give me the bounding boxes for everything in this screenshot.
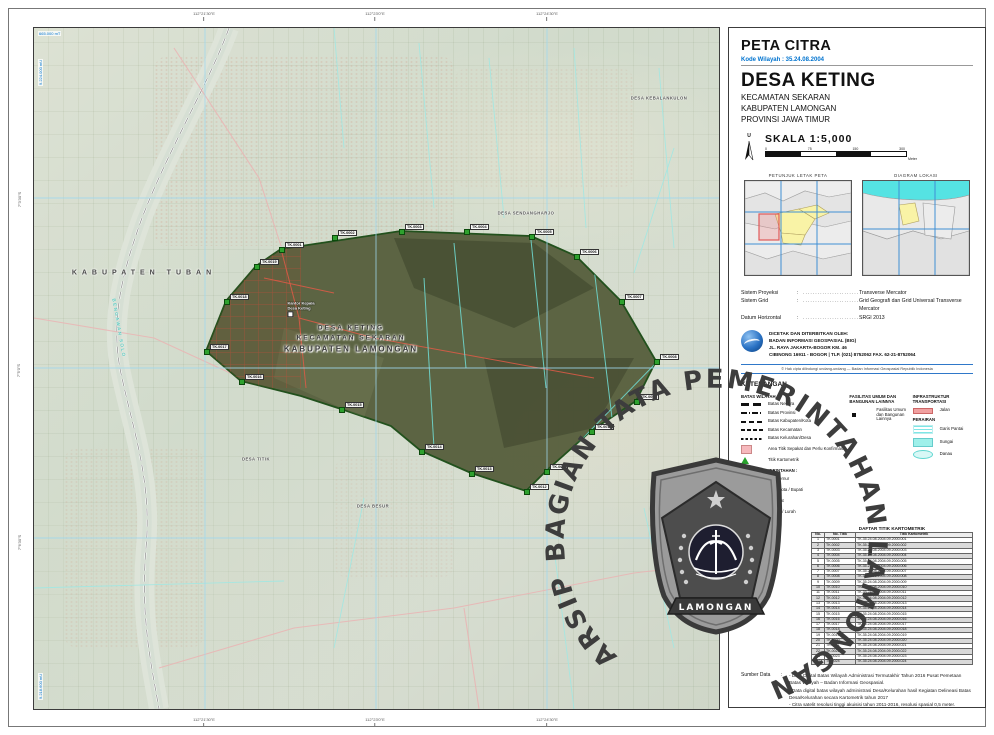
legend-item-label: Batas Kecamatan xyxy=(768,428,802,433)
table-cell-no-titik: TK.0024 xyxy=(825,659,856,664)
publisher-lines: DICETAK DAN DITERBITKAN OLEH:BADAN INFOR… xyxy=(769,330,916,358)
scale-label: SKALA 1:5,000 xyxy=(765,133,973,145)
scalebar-tick: 300 xyxy=(899,147,905,151)
copyright-strip: © Hak cipta dilindungi undang-undang — B… xyxy=(741,364,973,374)
legend-swatch xyxy=(741,445,752,454)
legend-kantor-title: KANTOR PEMERINTAHAN : xyxy=(741,468,845,473)
admin-line: KECAMATAN SEKARAN xyxy=(741,92,973,103)
projection-label: Sistem Grid xyxy=(741,297,797,305)
kartometric-table-block: DAFTAR TITIK KARTOMETRIK No.No. TitikTit… xyxy=(811,526,973,665)
publisher-line: BADAN INFORMASI GEOSPASIAL (BIG) xyxy=(769,337,916,344)
projection-value: SRGI 2013 xyxy=(859,314,973,322)
desa-label: DESA BESUR xyxy=(357,504,389,509)
legend-item-label: Sungai xyxy=(940,440,953,445)
legend-item: Batas Provinsi xyxy=(741,411,845,416)
tk-marker-label: TK.0014 xyxy=(425,444,444,450)
legend-swatch xyxy=(741,457,749,464)
grid-coordinate-label: 665.000 mT xyxy=(38,31,61,36)
legend-infra-items: Jalan xyxy=(913,408,973,414)
legend-item: Fasilitas Umum dan Bangunan Lainnya xyxy=(849,408,912,423)
legend-swatch xyxy=(741,438,763,440)
source-line: - Citra satelit resolusi tinggi akuisisi… xyxy=(789,701,973,708)
government-office-icon: ⌂ xyxy=(741,498,749,506)
publisher-line: JL. RAYA JAKARTA-BOGOR KM. 46 xyxy=(769,344,916,351)
legend-item: Titik Kartometrik xyxy=(741,457,845,464)
legend-swatch xyxy=(913,425,933,434)
tick-label: 112°23'0"E xyxy=(365,717,385,727)
tk-marker-label: TK.0007 xyxy=(625,294,644,300)
sources-label: Sumber Data xyxy=(741,672,781,708)
desa-label: DESA SENDANGHARJO xyxy=(498,211,555,216)
legend-columns: BATAS WILAYAH : Batas Negara Batas Provi… xyxy=(741,391,973,520)
tick-label: 112°24'30"E xyxy=(536,717,558,727)
legend-perairan-items: Garis Pantai Sungai Danau xyxy=(913,425,973,459)
legend-item-label: Danau xyxy=(940,452,953,457)
legend-item: Batas Negara xyxy=(741,402,845,407)
scale-block: U SKALA 1:5,000 075150300 Meter xyxy=(741,133,973,165)
legend-item-label: Jalan xyxy=(940,408,950,413)
tick-label: 112°23'0"E xyxy=(365,11,385,21)
desa-label: DESA TITIK xyxy=(242,457,270,462)
north-arrow: U xyxy=(741,133,757,165)
inset-location-guide-map xyxy=(744,180,852,276)
legend-swatch xyxy=(741,412,763,414)
scalebar-tick: 75 xyxy=(808,147,812,151)
tk-marker-label: TK.0013 xyxy=(475,466,494,472)
kartometric-table: No.No. TitikTitik Kartometrik 1 TK.0001 … xyxy=(811,532,973,665)
legend-item-label: Garis Pantai xyxy=(940,427,964,432)
admin-line: PROVINSI JAWA TIMUR xyxy=(741,114,973,125)
map-info-panel: PETA CITRA Kode Wilayah : 35.24.08.2004 … xyxy=(728,27,986,708)
desa-label: DESA KEBALANKULON xyxy=(631,96,688,101)
legend-batas-items: Batas Negara Batas Provinsi Batas Kabupa… xyxy=(741,402,845,464)
legend-fasum-items: Fasilitas Umum dan Bangunan Lainnya xyxy=(849,408,912,423)
tk-marker-label: TK.0001 xyxy=(285,242,304,248)
tk-marker-label: TK.0002 xyxy=(338,230,357,236)
legend-kantor-item: ⌂ ⌂ Walikota / Bupati xyxy=(741,487,845,495)
tk-marker-label: TK.0015 xyxy=(345,402,364,408)
tk-marker-label: TK.0011 xyxy=(550,464,568,470)
scalebar-unit: Meter xyxy=(765,157,917,161)
scalebar-tick: 150 xyxy=(852,147,858,151)
legend-swatch xyxy=(852,413,856,417)
tk-marker-label: TK.0008 xyxy=(660,354,679,360)
legend-infra-title: INFRASTRUKTUR TRANSPORTASI xyxy=(913,394,973,404)
projection-label: Datum Horizontal xyxy=(741,314,797,322)
legend-kantor-label: Desa / Lurah xyxy=(771,510,796,515)
kartometric-table-title: DAFTAR TITIK KARTOMETRIK xyxy=(811,526,973,531)
source-line: - Data digital batas wilayah administras… xyxy=(789,687,973,702)
legend-kantor-item: ⌂ ⌂ Camat xyxy=(741,498,845,506)
legend-item: Danau xyxy=(913,450,973,459)
tk-marker-label: TK.0012 xyxy=(530,484,549,490)
legend-item-label: Titik Kartometrik xyxy=(768,458,799,463)
kode-wilayah: Kode Wilayah : 35.24.08.2004 xyxy=(741,57,973,63)
legend-kantor-items: ⌂ ⌂ Gubernur ⌂ ⌂ Walikota / Bupati xyxy=(741,476,845,517)
map-sheet-page: 112°21'30"E112°23'0"E112°24'30"E 112°21'… xyxy=(0,0,994,735)
table-cell-kode: TK.35.24.08.2004.09.2000.024 xyxy=(856,659,973,664)
projection-value: Transverse Mercator xyxy=(859,289,973,297)
tick-label: 112°21'30"E xyxy=(193,717,215,727)
publisher-line: CIBINONG 16911 - BOGOR | TLP. (021) 8752… xyxy=(769,351,916,358)
tk-marker-label: TK.0017 xyxy=(210,344,229,350)
legend-kantor-label: Gubernur xyxy=(771,477,789,482)
projection-row: Datum Horizontal : .....................… xyxy=(741,314,973,322)
sources-block: Sumber Data : - Data Digital Batas Wilay… xyxy=(741,672,973,708)
table-body: 1 TK.0001 TK.35.24.08.2004.09.2000.001 2… xyxy=(812,538,973,665)
legend-item: Batas Kecamatan xyxy=(741,428,845,433)
legend-fasum-title: FASILITAS UMUM DAN BANGUNAN LAINNYA xyxy=(849,394,912,404)
grid-coordinate-label: 9.218.600 mU xyxy=(38,673,43,700)
legend-item-label: Batas Negara xyxy=(768,402,794,407)
projection-row: Sistem Grid : ..........................… xyxy=(741,297,973,314)
legend-kantor-label: Camat xyxy=(771,499,784,504)
tick-label: 112°24'30"E xyxy=(536,11,558,21)
legend-title: KETERANGAN xyxy=(741,381,973,388)
legend-item: Sungai xyxy=(913,438,973,447)
legend-item: Batas Kabupaten/Kota xyxy=(741,419,845,424)
projection-row: Sistem Proyeksi : ......................… xyxy=(741,289,973,297)
tick-label: 112°21'30"E xyxy=(193,11,215,21)
scalebar-tick: 0 xyxy=(765,147,767,151)
projection-label: Sistem Proyeksi xyxy=(741,289,797,297)
projection-info: Sistem Proyeksi : ......................… xyxy=(741,289,973,322)
legend-item: Garis Pantai xyxy=(913,425,973,434)
inset-location-diagram-map xyxy=(862,180,970,276)
legend-swatch xyxy=(741,421,763,423)
legend-item: Jalan xyxy=(913,408,973,414)
legend-swatch xyxy=(913,408,933,414)
government-office-icon: ⌂ xyxy=(741,487,749,495)
tick-label: 7°3'30"S xyxy=(17,192,22,207)
tk-marker-label: TK.0006 xyxy=(580,249,599,255)
tk-marker-label: TK.0004 xyxy=(470,224,489,230)
divider xyxy=(741,65,973,66)
big-globe-logo-icon xyxy=(741,330,763,352)
tk-marker-label: TK.0009 xyxy=(640,394,659,400)
legend-batas-title: BATAS WILAYAH : xyxy=(741,394,845,399)
map-canvas: KABUPATEN TUBAN DESA KETINGKECAMATAN SEK… xyxy=(33,27,720,710)
table-row: 24 TK.0024 TK.35.24.08.2004.09.2000.024 xyxy=(812,659,973,664)
legend-item-label: Batas Provinsi xyxy=(768,411,795,416)
table-cell-no: 24 xyxy=(812,659,825,664)
government-office-icon: ⌂ xyxy=(752,509,760,517)
government-office-icon: ⌂ xyxy=(741,509,749,517)
publisher-block: DICETAK DAN DITERBITKAN OLEH:BADAN INFOR… xyxy=(741,330,973,358)
projection-value: Grid Geografi dan Grid Universal Transve… xyxy=(859,297,973,314)
grid-coordinate-label: 9.224.000 mU xyxy=(38,59,43,86)
inset-location-diagram: DIAGRAM LOKASI xyxy=(862,173,970,281)
legend-swatch xyxy=(741,429,763,431)
village-layer xyxy=(34,28,719,709)
tk-marker-label: TK.0003 xyxy=(405,224,424,230)
tk-marker-label: TK.0005 xyxy=(535,229,554,235)
tk-marker-label: TK.0016 xyxy=(245,374,264,380)
village-title: DESA KETING xyxy=(741,70,973,92)
government-office-icon: ⌂ xyxy=(752,487,760,495)
legend-item: Area Titik Sepakat dan Perlu Konfirmasi xyxy=(741,445,845,454)
inset-caption: DIAGRAM LOKASI xyxy=(862,173,970,178)
inset-location-guide: PETUNJUK LETAK PETA xyxy=(744,173,852,281)
admin-line: KABUPATEN LAMONGAN xyxy=(741,103,973,114)
north-arrow-icon xyxy=(742,139,756,163)
legend-swatch xyxy=(913,438,933,447)
tk-marker-label: TK.0010 xyxy=(595,424,614,430)
legend-swatch xyxy=(913,450,933,459)
legend-swatch xyxy=(741,403,763,406)
source-line: - Data Digital Batas Wilayah Administras… xyxy=(789,672,973,687)
publisher-line: DICETAK DAN DITERBITKAN OLEH: xyxy=(769,330,916,337)
sources-items: - Data Digital Batas Wilayah Administras… xyxy=(789,672,973,708)
inset-caption: PETUNJUK LETAK PETA xyxy=(744,173,852,178)
legend-kantor-label: Walikota / Bupati xyxy=(771,488,803,493)
tick-label: 7°5'0"S xyxy=(16,364,21,377)
sheet-title: PETA CITRA xyxy=(741,38,973,54)
government-office-icon: ⌂ xyxy=(741,476,749,484)
legend-perairan-title: PERAIRAN xyxy=(913,417,973,422)
tk-marker-label: TK.0018 xyxy=(230,294,249,300)
admin-hierarchy: KECAMATAN SEKARANKABUPATEN LAMONGANPROVI… xyxy=(741,92,973,126)
legend-item-label: Batas Kelurahan/Desa xyxy=(768,436,811,441)
legend-kantor-item: ⌂ ⌂ Desa / Lurah xyxy=(741,509,845,517)
legend-item-label: Area Titik Sepakat dan Perlu Konfirmasi xyxy=(768,447,844,452)
legend-item: Batas Kelurahan/Desa xyxy=(741,436,845,441)
tk-marker-label: TK.0019 xyxy=(260,259,279,265)
legend-item-label: Batas Kabupaten/Kota xyxy=(768,419,811,424)
legend-item-label: Fasilitas Umum dan Bangunan Lainnya xyxy=(876,408,912,423)
legend-kantor-item: ⌂ ⌂ Gubernur xyxy=(741,476,845,484)
tick-label: 7°6'30"S xyxy=(17,535,22,550)
